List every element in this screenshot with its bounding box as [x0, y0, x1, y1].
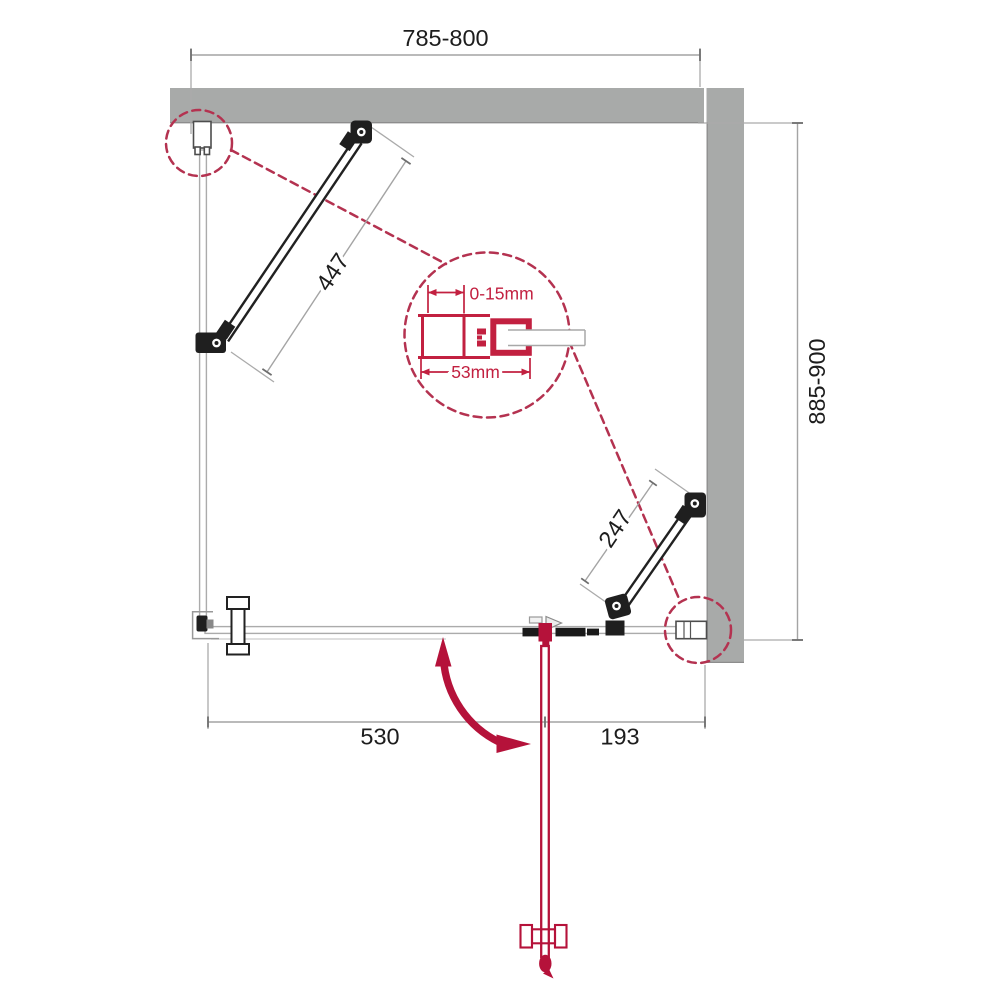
side-depth-label: 885-900	[804, 338, 830, 424]
long-brace-label: 447	[311, 248, 354, 295]
door-swing-arc-arrow	[444, 659, 501, 743]
dimension-tick	[581, 578, 589, 583]
screw-center	[359, 130, 363, 134]
arrowhead	[456, 289, 465, 296]
pivot-clamp-plate	[587, 629, 599, 636]
arrowhead-right	[497, 735, 532, 754]
shower-enclosure-plan-drawing: 785-800 885-900 530 193	[0, 0, 1000, 1000]
arrowhead	[522, 369, 531, 376]
arrowhead	[428, 289, 437, 296]
glass-knob-cap	[227, 644, 249, 655]
profile-clip	[477, 329, 486, 335]
top-left-profile-leg	[204, 147, 209, 155]
dimension-tick	[401, 158, 410, 164]
swing-door-open-position	[435, 623, 567, 979]
corner-connector-block	[197, 616, 208, 632]
brace-foot	[606, 621, 625, 636]
short-brace-label: 247	[593, 505, 636, 552]
left-fixed-glass-panel	[200, 150, 207, 626]
door-handle-cap	[521, 925, 533, 948]
wall-corner-seam	[704, 88, 707, 122]
door-pivot-block	[539, 623, 553, 642]
bottom-hardware	[193, 597, 599, 655]
top-wall	[170, 88, 704, 122]
glass-knob-cap	[227, 597, 249, 609]
adjustment-range-label: 0-15mm	[470, 284, 534, 304]
screw-center	[215, 341, 219, 345]
profile-clip	[477, 341, 486, 347]
arrowhead-up	[435, 637, 452, 667]
door-glass-panel	[541, 646, 549, 957]
brace-bar-inner	[225, 141, 359, 339]
extension-line	[371, 127, 414, 157]
profile-width-label: 53mm	[451, 362, 500, 382]
door-handle-body	[532, 929, 555, 943]
top-left-wall-profile	[194, 122, 212, 149]
callout-connector-line	[569, 341, 680, 601]
fixed-glass-panels	[200, 150, 677, 633]
technical-drawing-page: 785-800 885-900 530 193	[0, 0, 1000, 1000]
support-brace-247: 247	[580, 469, 706, 636]
top-width-label: 785-800	[402, 25, 488, 51]
door-end-cap	[539, 955, 551, 973]
screw-center	[615, 604, 619, 608]
glass-knob-body	[232, 609, 245, 644]
side-wall	[707, 88, 745, 663]
door-segment-label: 193	[600, 724, 639, 750]
arrowhead	[421, 369, 430, 376]
bottom-right-wall-profile	[676, 621, 707, 638]
glass-tongue	[508, 330, 585, 346]
top-left-profile-leg	[195, 147, 200, 155]
dimension-tick	[649, 480, 657, 485]
corner-connector-nub	[207, 620, 214, 629]
pivot-clamp-plate	[556, 628, 586, 637]
extension-line	[231, 352, 274, 382]
pivot-tab	[530, 617, 543, 623]
fixed-segment-label: 530	[360, 724, 399, 750]
profile-clip	[477, 336, 482, 340]
screw-center	[693, 502, 697, 506]
door-handle-cap	[555, 925, 567, 948]
